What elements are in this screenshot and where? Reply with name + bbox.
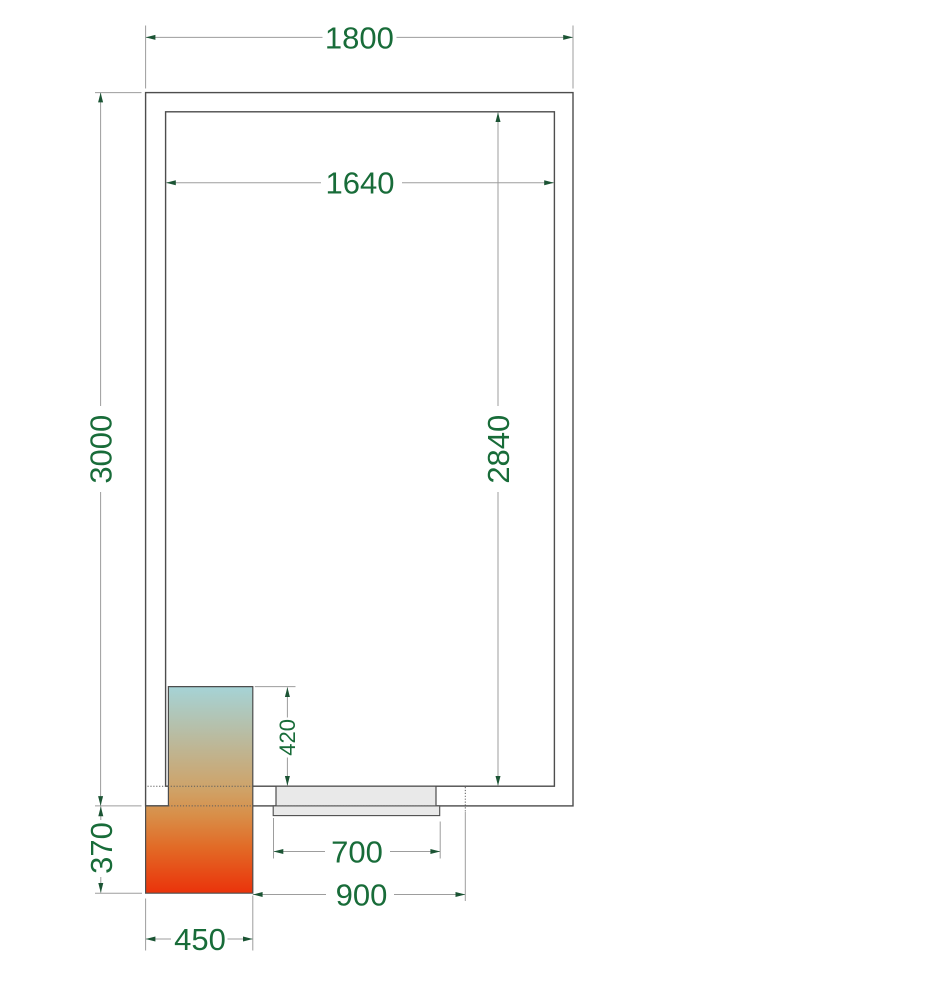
svg-text:1800: 1800: [325, 20, 394, 55]
svg-text:700: 700: [331, 835, 383, 870]
svg-text:370: 370: [84, 822, 119, 874]
svg-text:420: 420: [275, 719, 300, 756]
svg-text:900: 900: [336, 878, 388, 913]
svg-text:450: 450: [174, 922, 226, 957]
svg-text:1640: 1640: [326, 166, 395, 201]
svg-text:2840: 2840: [481, 415, 516, 484]
svg-text:3000: 3000: [84, 415, 119, 484]
